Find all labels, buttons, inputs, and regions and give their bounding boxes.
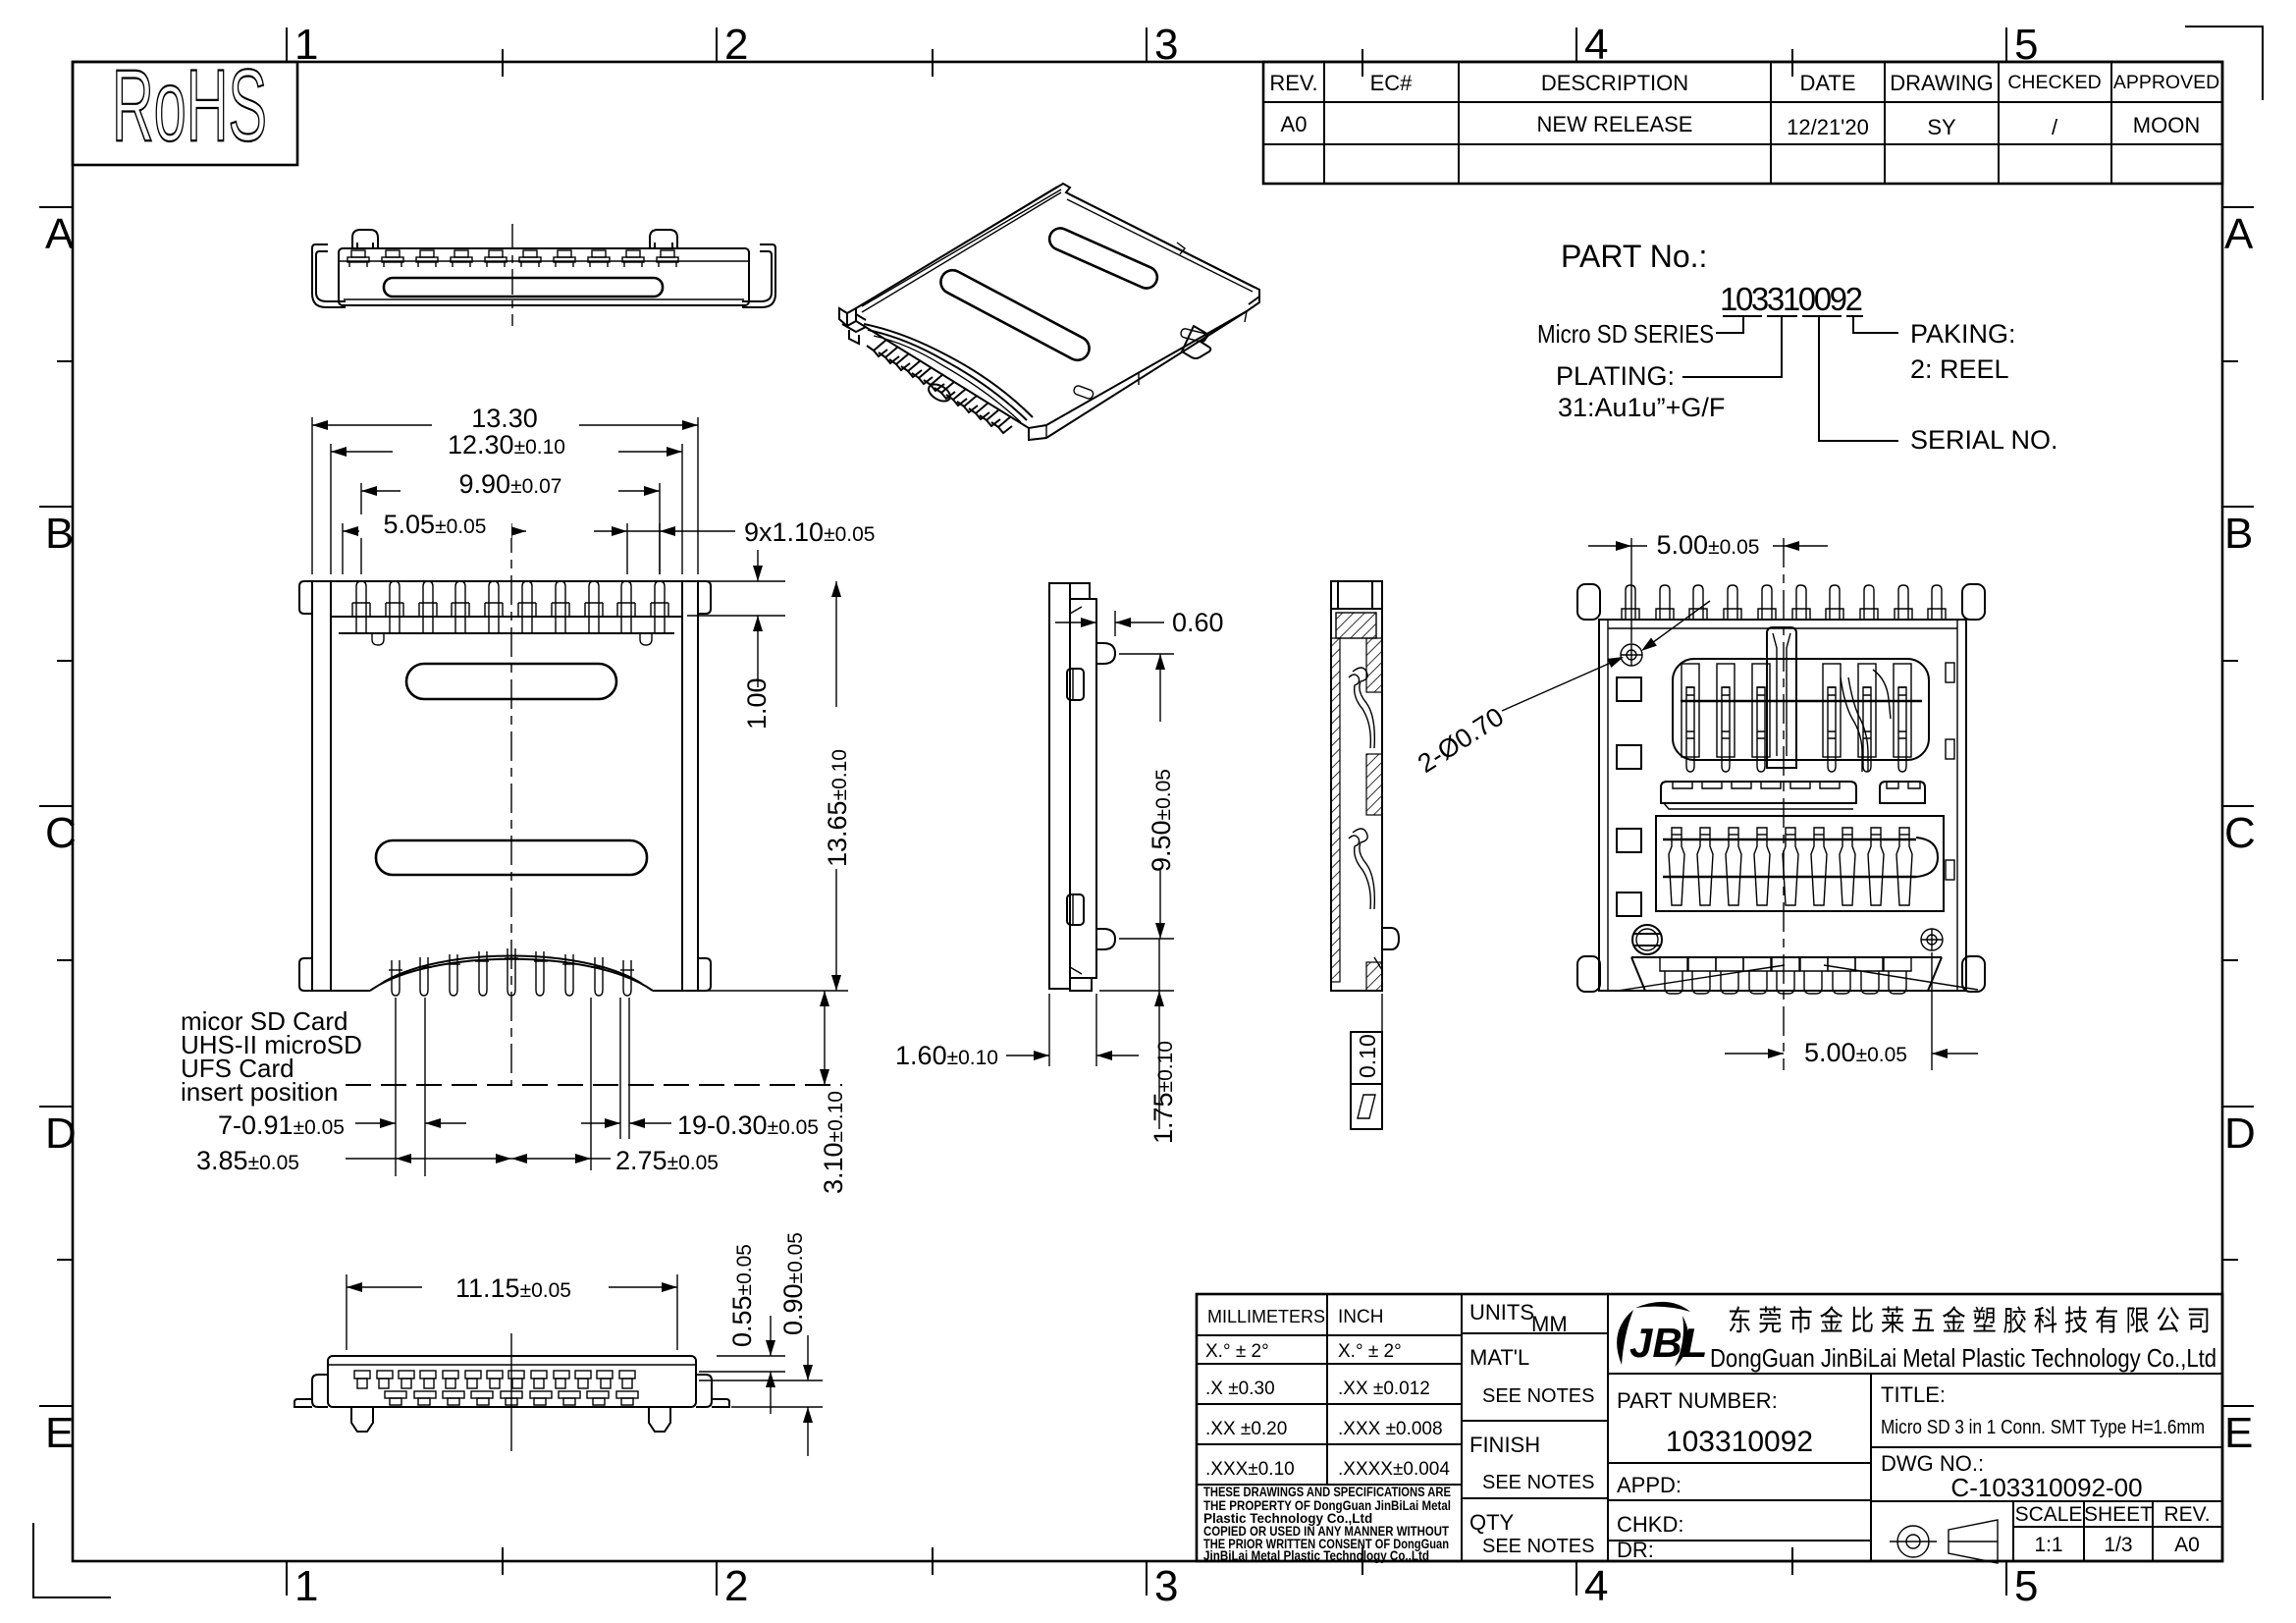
svg-text:13.30: 13.30 (471, 404, 538, 433)
svg-text:0.10: 0.10 (1355, 1034, 1380, 1078)
svg-text:MAT'L: MAT'L (1469, 1345, 1529, 1370)
svg-text:1: 1 (294, 1562, 318, 1610)
svg-text:INCH: INCH (1338, 1307, 1383, 1327)
svg-text:/: / (2052, 115, 2058, 139)
svg-text:.X ±0.30: .X ±0.30 (1205, 1379, 1275, 1399)
svg-text:2: 2 (724, 1562, 748, 1610)
svg-text:CHKD:: CHKD: (1617, 1512, 1683, 1537)
svg-text:0.60: 0.60 (1172, 608, 1224, 637)
svg-text:5: 5 (2014, 1562, 2038, 1610)
svg-text:APPROVED: APPROVED (2113, 72, 2219, 93)
svg-text:.XXX ±0.008: .XXX ±0.008 (1338, 1419, 1443, 1439)
svg-text:SERIAL NO.: SERIAL NO. (1910, 425, 2058, 455)
svg-text:103310092: 103310092 (1666, 1426, 1813, 1458)
svg-text:THESE DRAWINGS AND SPECIFICATI: THESE DRAWINGS AND SPECIFICATIONS ARE (1203, 1485, 1451, 1499)
svg-text:1/3: 1/3 (2104, 1534, 2132, 1556)
svg-text:MILLIMETERS: MILLIMETERS (1207, 1307, 1325, 1326)
svg-text:UNITS: UNITS (1469, 1300, 1534, 1325)
svg-text:B: B (2224, 510, 2253, 558)
svg-text:DRAWING: DRAWING (1890, 71, 1994, 95)
svg-text:FINISH: FINISH (1469, 1433, 1540, 1457)
svg-text:DATE: DATE (1799, 71, 1855, 95)
svg-text:JBL: JBL (1629, 1320, 1707, 1366)
svg-text:A: A (2224, 210, 2254, 258)
svg-text:C: C (2224, 809, 2256, 857)
svg-text:2: REEL: 2: REEL (1910, 354, 2009, 384)
svg-text:E: E (2224, 1409, 2253, 1457)
svg-text:NEW RELEASE: NEW RELEASE (1537, 112, 1693, 136)
svg-text:QTY: QTY (1469, 1510, 1515, 1535)
svg-text:SY: SY (1927, 115, 1956, 139)
svg-text:.XX ±0.20: .XX ±0.20 (1205, 1419, 1287, 1439)
svg-text:APPD:: APPD: (1617, 1473, 1682, 1497)
svg-text:SEE NOTES: SEE NOTES (1482, 1472, 1594, 1493)
svg-text:SEE NOTES: SEE NOTES (1482, 1536, 1594, 1557)
svg-text:DR:: DR: (1617, 1538, 1654, 1562)
svg-text:SHEET: SHEET (2084, 1503, 2153, 1526)
svg-text:EC#: EC# (1370, 71, 1414, 95)
svg-text:3: 3 (1154, 21, 1178, 69)
svg-text:A0: A0 (1281, 112, 1308, 136)
svg-text:31:Au1u”+G/F: 31:Au1u”+G/F (1558, 393, 1725, 422)
svg-text:B: B (45, 510, 74, 558)
svg-text:D: D (2224, 1109, 2256, 1158)
svg-text:PART No.:: PART No.: (1561, 239, 1707, 274)
svg-text:3: 3 (1154, 1562, 1178, 1610)
svg-text:SEE NOTES: SEE NOTES (1482, 1385, 1594, 1407)
svg-text:E: E (45, 1409, 74, 1457)
svg-text:103310092: 103310092 (1720, 281, 1863, 317)
svg-text:insert position: insert position (181, 1077, 338, 1107)
svg-text:A0: A0 (2174, 1534, 2200, 1556)
svg-text:4: 4 (1584, 1562, 1608, 1610)
svg-text:MM: MM (1531, 1312, 1568, 1336)
svg-text:DESCRIPTION: DESCRIPTION (1541, 71, 1688, 95)
svg-text:1:1: 1:1 (2034, 1534, 2062, 1556)
svg-text:SCALE: SCALE (2015, 1503, 2083, 1526)
svg-text:X.° ± 2°: X.° ± 2° (1205, 1341, 1269, 1362)
svg-text:2: 2 (724, 21, 748, 69)
svg-text:.XX ±0.012: .XX ±0.012 (1338, 1379, 1430, 1399)
svg-text:REV.: REV. (2163, 1503, 2210, 1526)
svg-text:1.00: 1.00 (742, 677, 772, 730)
svg-text:RoHS: RoHS (112, 49, 267, 163)
svg-text:JinBiLai Metal Plastic Technol: JinBiLai Metal Plastic Technology Co.,Lt… (1203, 1548, 1429, 1563)
svg-text:CHECKED: CHECKED (2007, 72, 2101, 93)
svg-text:12/21'20: 12/21'20 (1787, 115, 1869, 139)
svg-text:PAKING:: PAKING: (1910, 319, 2016, 349)
svg-text:REV.: REV. (1269, 71, 1317, 95)
svg-text:X.° ± 2°: X.° ± 2° (1338, 1341, 1402, 1362)
svg-text:D: D (45, 1109, 77, 1158)
svg-text:Micro SD 3 in 1 Conn. SMT Type: Micro SD 3 in 1 Conn. SMT Type H=1.6mm (1881, 1417, 2205, 1438)
svg-text:PLATING:: PLATING: (1556, 361, 1675, 391)
svg-text:MOON: MOON (2133, 113, 2200, 137)
svg-text:东 莞 市 金 比 莱 五 金 塑 胶 科 技 有 限 公: 东 莞 市 金 比 莱 五 金 塑 胶 科 技 有 限 公 司 (1728, 1305, 2211, 1337)
svg-text:.XXX±0.10: .XXX±0.10 (1205, 1459, 1295, 1480)
svg-text:Micro SD SERIES: Micro SD SERIES (1537, 319, 1714, 349)
svg-text:C-103310092-00: C-103310092-00 (1950, 1473, 2142, 1502)
svg-text:PART NUMBER:: PART NUMBER: (1617, 1388, 1778, 1413)
svg-text:TITLE:: TITLE: (1881, 1382, 1946, 1407)
svg-text:DongGuan JinBiLai Metal Plasti: DongGuan JinBiLai Metal Plastic Technolo… (1710, 1343, 2216, 1373)
svg-text:C: C (45, 809, 77, 857)
svg-text:.XXXX±0.004: .XXXX±0.004 (1338, 1459, 1450, 1480)
svg-text:A: A (45, 210, 75, 258)
